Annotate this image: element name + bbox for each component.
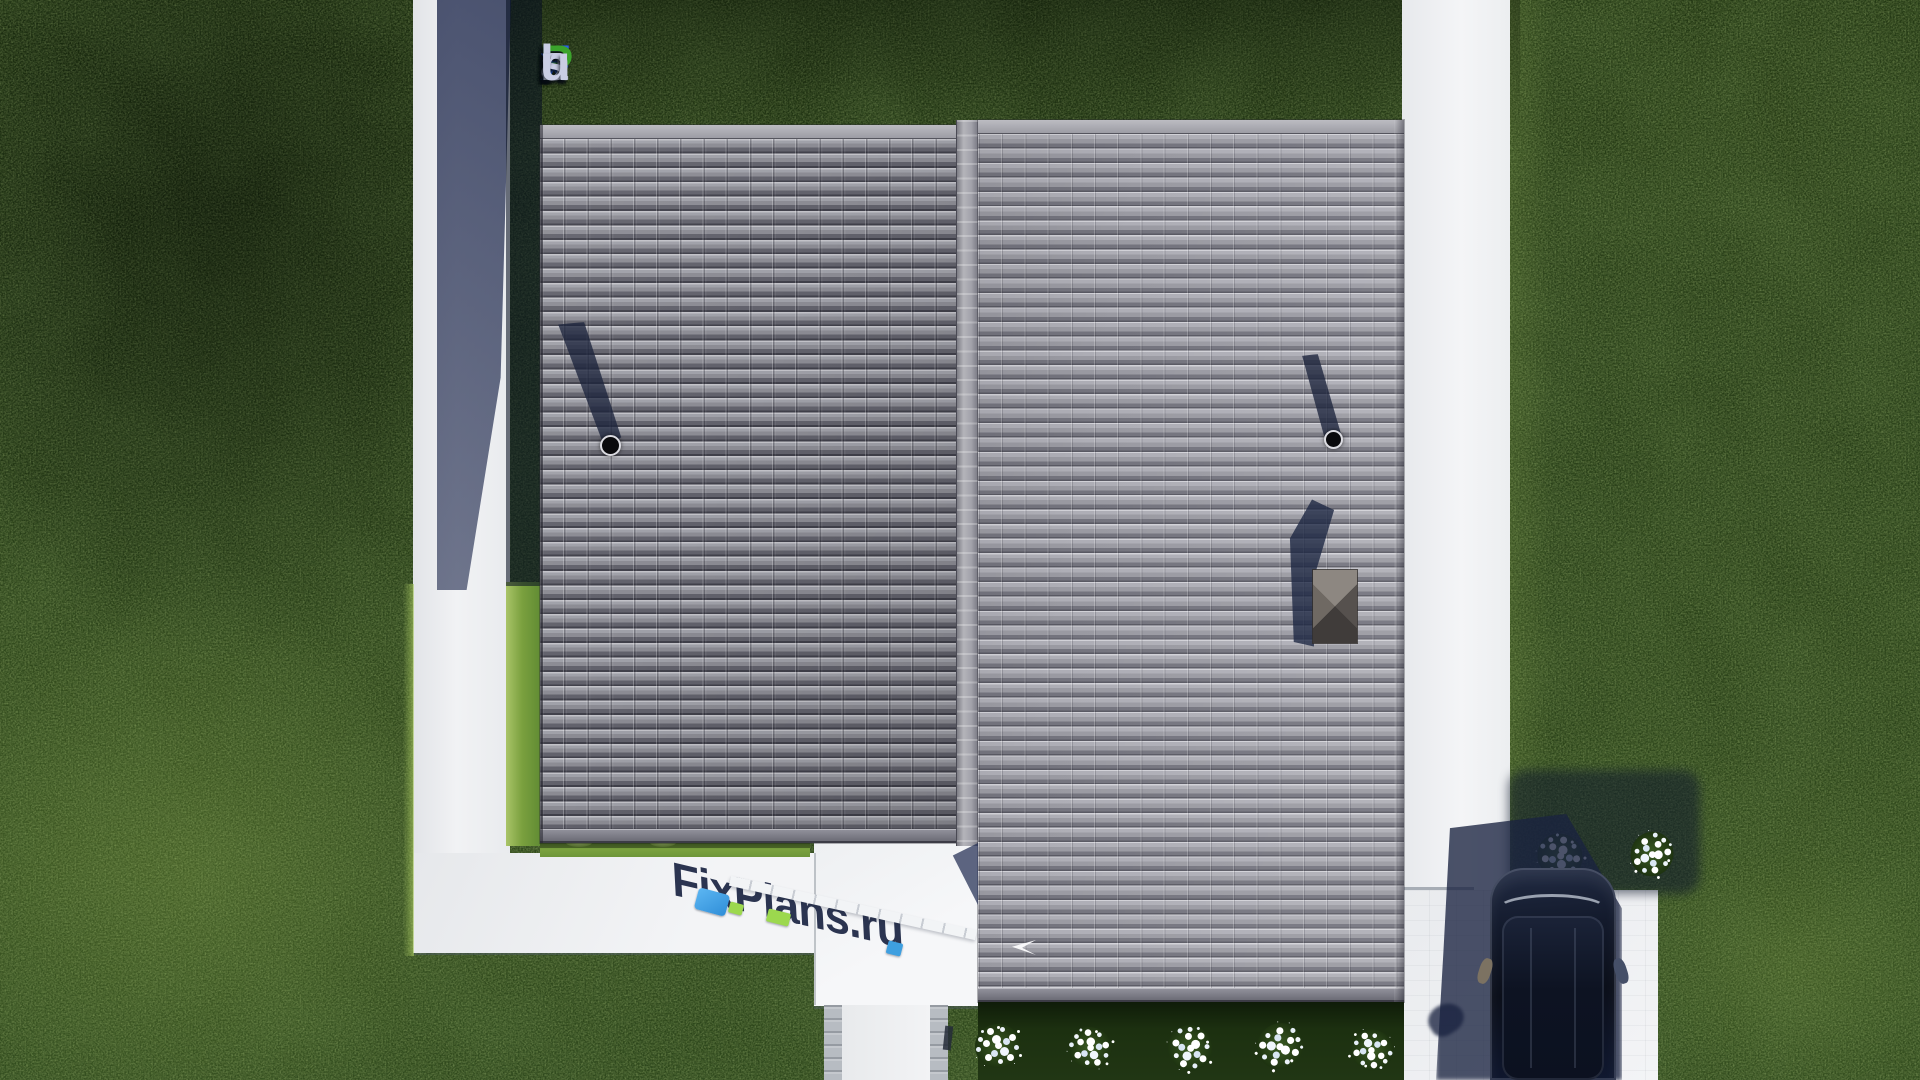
walkway-edge: [824, 1005, 842, 1080]
walkway: [842, 1005, 930, 1080]
chimney-vent: [1324, 430, 1343, 449]
sunlit-grass-edge: [403, 584, 414, 956]
roof-edge: [1394, 120, 1404, 1002]
watermark-letter: u: [540, 34, 569, 92]
house-shadow: [506, 0, 542, 586]
eave: [540, 829, 958, 843]
roof-valley: [956, 120, 980, 846]
car: [1490, 868, 1616, 1080]
sunlit-grass-strip: [506, 582, 542, 846]
eave: [978, 988, 1404, 1002]
car-roof: [1502, 916, 1604, 1080]
roof-tiles: [978, 134, 1404, 988]
aerial-render: FixPlans.ru FixPlans.ru: [0, 0, 1920, 1080]
path-right: [1402, 0, 1510, 892]
ridge-cap: [540, 125, 958, 139]
eave-shadow: [540, 843, 810, 848]
roof-right-section: [978, 120, 1404, 1002]
roof-hatch: [1313, 570, 1357, 643]
roof-left-section: [540, 125, 958, 843]
chimney-vent: [600, 435, 621, 456]
roof-tiles: [540, 139, 958, 829]
valley-ticks: [957, 120, 979, 846]
flower-bush: [963, 1014, 1033, 1078]
roof-edge: [540, 125, 543, 843]
ridge-cap: [978, 120, 1404, 134]
